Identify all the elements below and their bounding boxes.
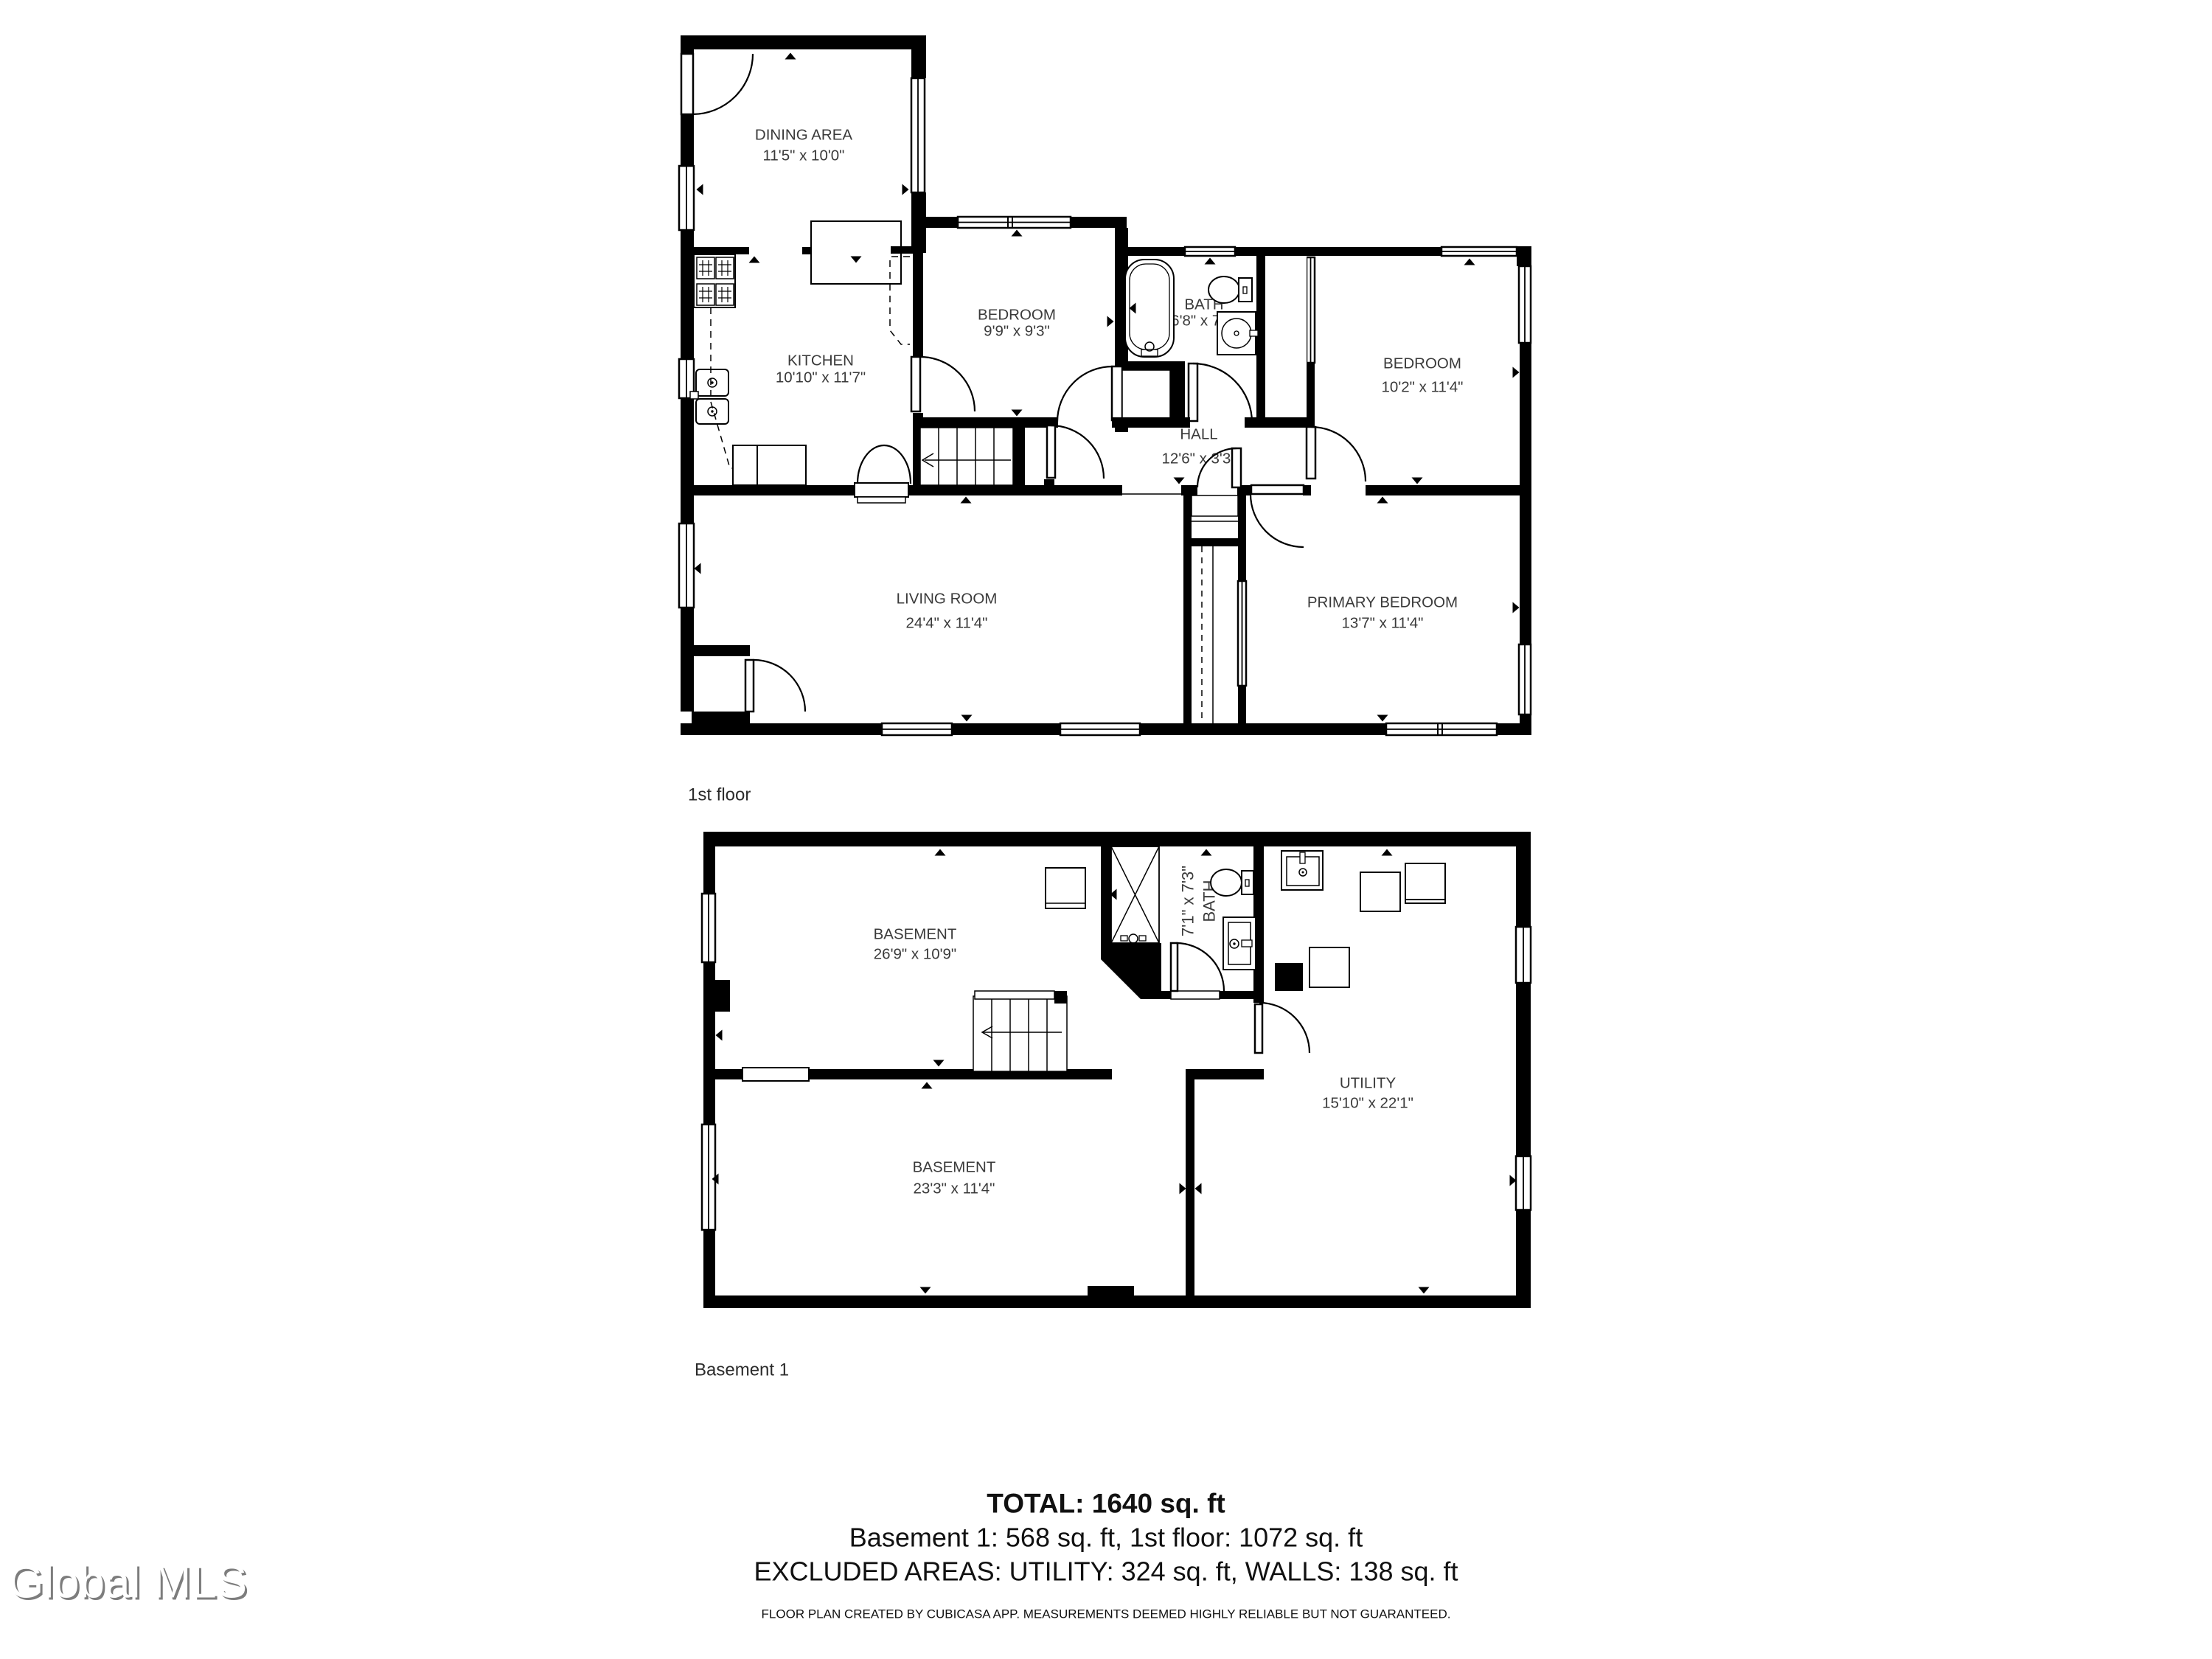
svg-text:7'1" x 7'3": 7'1" x 7'3": [1179, 866, 1197, 936]
svg-text:LIVING ROOM: LIVING ROOM: [897, 591, 998, 608]
svg-text:Basement 1: Basement 1: [695, 1360, 789, 1380]
svg-text:BASEMENT: BASEMENT: [913, 1159, 996, 1176]
svg-text:EXCLUDED AREAS: UTILITY: 324 s: EXCLUDED AREAS: UTILITY: 324 sq. ft, WAL…: [754, 1557, 1458, 1587]
svg-text:10'10" x 11'7": 10'10" x 11'7": [776, 369, 866, 386]
svg-text:Basement 1: 568 sq. ft, 1st fl: Basement 1: 568 sq. ft, 1st floor: 1072 …: [849, 1523, 1363, 1553]
svg-text:DINING AREA: DINING AREA: [755, 127, 852, 144]
svg-text:9'9" x 9'3": 9'9" x 9'3": [984, 323, 1050, 340]
svg-text:TOTAL: 1640 sq. ft: TOTAL: 1640 sq. ft: [987, 1489, 1225, 1519]
svg-text:BEDROOM: BEDROOM: [1383, 355, 1461, 372]
svg-text:24'4" x 11'4": 24'4" x 11'4": [906, 615, 988, 632]
svg-text:26'9" x 10'9": 26'9" x 10'9": [874, 946, 956, 963]
svg-text:UTILITY: UTILITY: [1340, 1075, 1397, 1092]
svg-text:FLOOR PLAN CREATED BY CUBICASA: FLOOR PLAN CREATED BY CUBICASA APP. MEAS…: [762, 1607, 1451, 1621]
svg-text:HALL: HALL: [1180, 426, 1217, 443]
svg-text:PRIMARY BEDROOM: PRIMARY BEDROOM: [1307, 594, 1458, 611]
svg-text:BASEMENT: BASEMENT: [874, 926, 957, 943]
svg-text:BEDROOM: BEDROOM: [978, 307, 1056, 324]
svg-text:1st floor: 1st floor: [688, 785, 751, 805]
svg-text:23'3" x 11'4": 23'3" x 11'4": [914, 1180, 995, 1197]
svg-text:13'7" x 11'4": 13'7" x 11'4": [1342, 615, 1424, 632]
svg-text:15'10" x 22'1": 15'10" x 22'1": [1322, 1095, 1413, 1112]
svg-text:11'5" x 10'0": 11'5" x 10'0": [763, 147, 845, 164]
svg-text:Global MLS: Global MLS: [8, 1557, 247, 1608]
svg-text:12'6" x 3'3": 12'6" x 3'3": [1161, 451, 1236, 467]
svg-text:10'2" x 11'4": 10'2" x 11'4": [1382, 379, 1464, 396]
svg-text:KITCHEN: KITCHEN: [787, 352, 854, 369]
